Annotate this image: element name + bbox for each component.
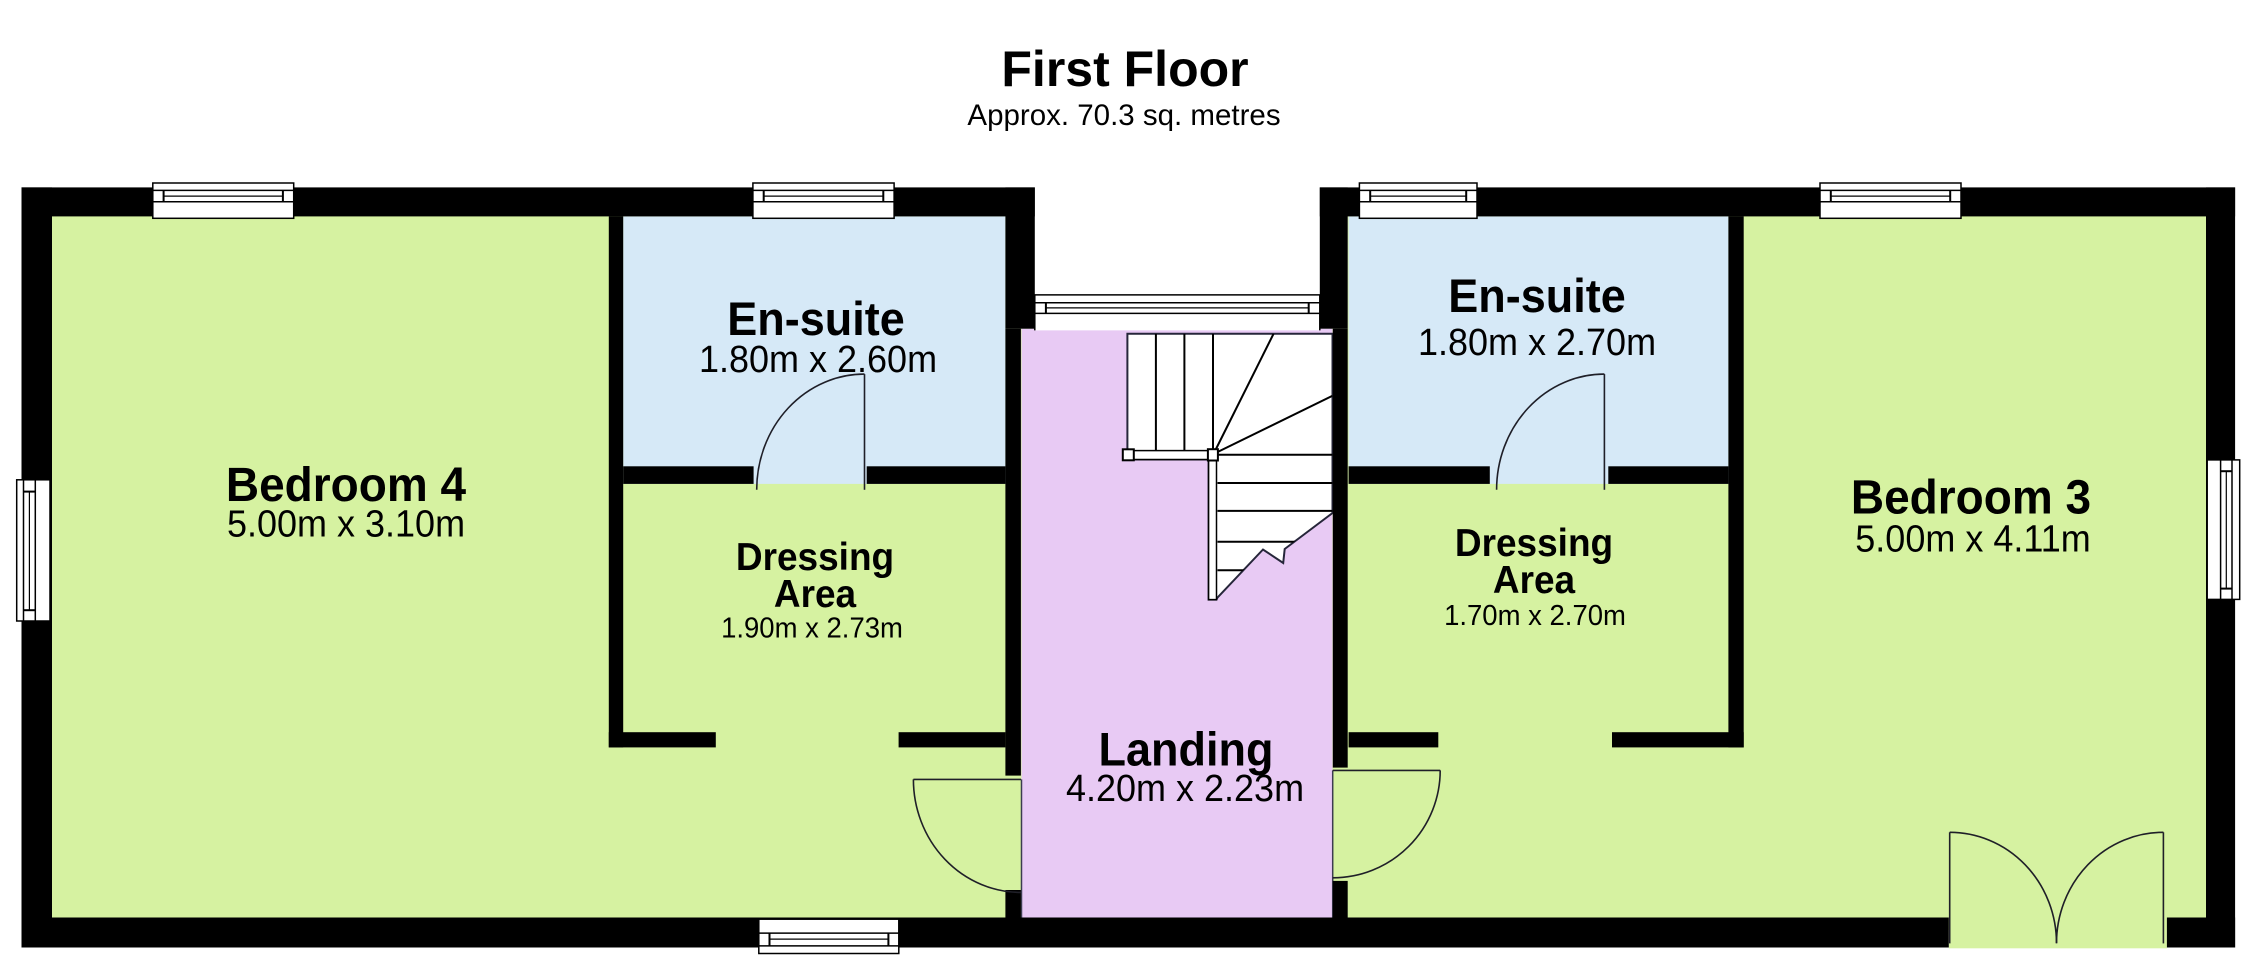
svg-text:Bedroom 3: Bedroom 3: [1851, 470, 2091, 524]
svg-text:1.80m x 2.60m: 1.80m x 2.60m: [699, 338, 937, 380]
svg-text:En-suite: En-suite: [1448, 269, 1625, 322]
svg-text:5.00m x 4.11m: 5.00m x 4.11m: [1855, 518, 2090, 560]
svg-text:1.70m x 2.70m: 1.70m x 2.70m: [1444, 598, 1626, 631]
svg-text:First Floor: First Floor: [1001, 41, 1248, 97]
svg-text:4.20m x 2.23m: 4.20m x 2.23m: [1066, 767, 1304, 809]
svg-text:Area: Area: [774, 573, 857, 616]
svg-text:Approx. 70.3 sq. metres: Approx. 70.3 sq. metres: [967, 99, 1280, 132]
svg-text:5.00m x 3.10m: 5.00m x 3.10m: [227, 503, 465, 545]
svg-text:Area: Area: [1493, 559, 1576, 602]
svg-text:1.80m x 2.70m: 1.80m x 2.70m: [1418, 321, 1656, 363]
svg-text:1.90m x 2.73m: 1.90m x 2.73m: [721, 611, 903, 644]
